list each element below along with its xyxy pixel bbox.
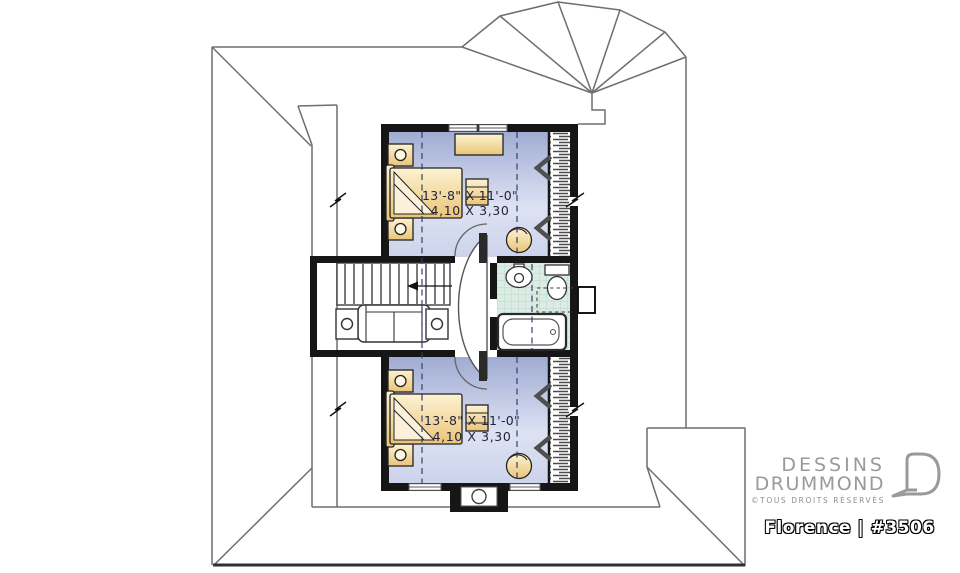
round-window [461,487,497,506]
armchair-icon [507,228,532,253]
turret-base-step [578,93,605,124]
lamp-icon [395,376,406,387]
window-top-1 [449,125,477,132]
brand-block: DESSINS DRUMMOND ©TOUS DROITS RÉSERVÉS [735,450,945,505]
dimension-label-imperial-lower: 13'-8" X 11'-0" [424,413,520,428]
window-bottom-2 [510,484,540,491]
brand-rights: ©TOUS DROITS RÉSERVÉS [751,497,885,505]
drummond-door-logo-icon [889,450,945,502]
hip-top-left [212,47,311,146]
bottom-right-roof-block [647,428,745,566]
dresser-icon [455,134,503,155]
end-table-right-icon [426,309,448,339]
closet-hatch-upper [549,131,570,256]
door-leaf-lower [479,351,487,381]
hip-bottom-left [215,468,312,564]
turret-roof-outline [462,2,686,57]
closet-hatch-lower [549,357,570,483]
dimension-label-imperial-upper: 13'-8" X 11'-0" [422,188,518,203]
window-top-2 [479,125,507,132]
toilet-icon [545,265,569,300]
end-table-left-icon [336,309,358,339]
break-mark [330,402,346,416]
dimension-label-metric-lower: 4,10 X 3,30 [433,429,512,444]
plan-model-label: Florence | #3506 [762,518,937,538]
lamp-icon [395,450,406,461]
lamp-icon [395,224,406,235]
dimension-label-metric-upper: 4,10 X 3,30 [431,203,510,218]
left-dormer-strip [298,105,337,507]
door-leaf-upper [479,233,487,263]
staircase [337,263,452,305]
turret-fan-hip-lines [462,2,686,93]
sofa-icon [358,305,430,342]
vanity-niche [578,287,595,313]
armchair-icon [507,454,532,479]
lamp-icon [395,150,406,161]
window-bottom-1 [409,484,441,491]
break-mark [330,193,346,207]
brand-name-line2: DRUMMOND [751,475,885,494]
